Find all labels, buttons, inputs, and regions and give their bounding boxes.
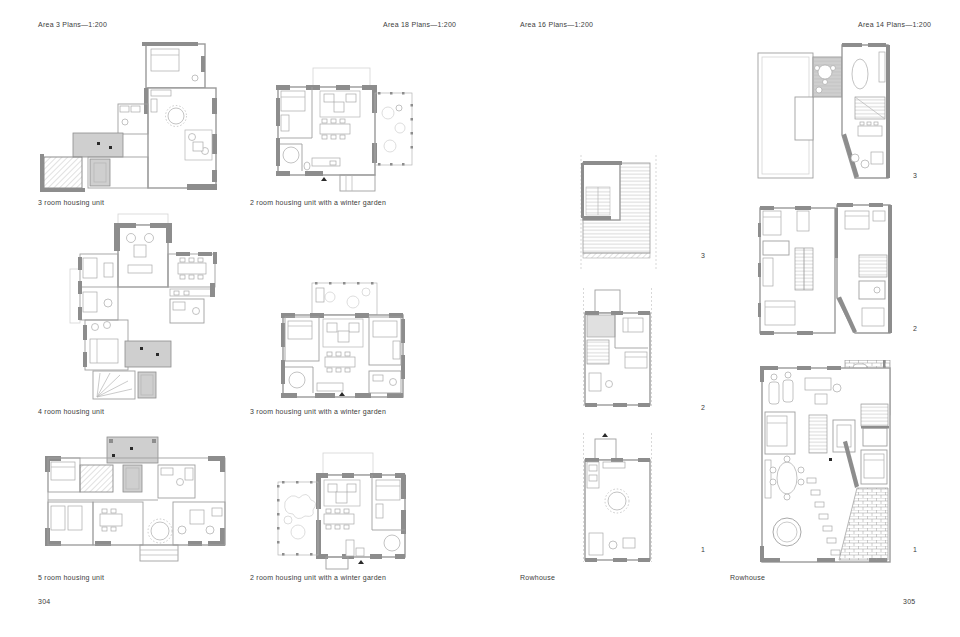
level-label-14-2: 2: [913, 325, 917, 332]
floor-plan-3-room-housing-unit: [35, 42, 235, 196]
floor-plan-2-room-winter-garden-bottom: [250, 440, 432, 572]
rowhouse-14-level-1: [757, 360, 895, 567]
level-label-16-3: 3: [701, 252, 705, 259]
rowhouse-14-level-2: [757, 203, 892, 340]
level-label-16-2: 2: [701, 404, 705, 411]
floor-plan-5-room-housing-unit: [40, 428, 230, 572]
header-area-3: Area 3 Plans—1:200: [38, 21, 107, 28]
floor-plan-2-room-winter-garden-top: [250, 58, 435, 198]
rowhouse-16-level-3: [575, 155, 662, 270]
caption-rowhouse-16: Rowhouse: [520, 574, 555, 581]
header-area-14: Area 14 Plans—1:200: [858, 21, 931, 28]
rowhouse-14-level-3: [755, 42, 892, 182]
caption-plan-5: 5 room housing unit: [38, 574, 104, 581]
book-spread: Area 3 Plans—1:200 Area 18 Plans—1:200: [0, 0, 960, 637]
caption-plan-4: 3 room housing unit with a winter garden: [250, 408, 386, 415]
caption-plan-2: 2 room housing unit with a winter garden: [250, 199, 386, 206]
caption-rowhouse-14: Rowhouse: [730, 574, 765, 581]
caption-plan-6: 2 room housing unit with a winter garden: [250, 574, 386, 581]
header-area-18: Area 18 Plans—1:200: [383, 21, 456, 28]
header-area-16: Area 16 Plans—1:200: [520, 21, 593, 28]
page-number-right: 305: [903, 598, 915, 605]
rowhouse-16-level-2: [583, 288, 652, 407]
level-label-14-3: 3: [913, 172, 917, 179]
caption-plan-3: 4 room housing unit: [38, 408, 104, 415]
level-label-16-1: 1: [701, 546, 705, 553]
page-number-left: 304: [38, 598, 50, 605]
floor-plan-3-room-winter-garden: [255, 275, 435, 400]
caption-plan-1: 3 room housing unit: [38, 199, 104, 206]
level-label-14-1: 1: [913, 546, 917, 553]
floor-plan-4-room-housing-unit: [40, 213, 232, 400]
rowhouse-16-level-1: [583, 433, 652, 562]
